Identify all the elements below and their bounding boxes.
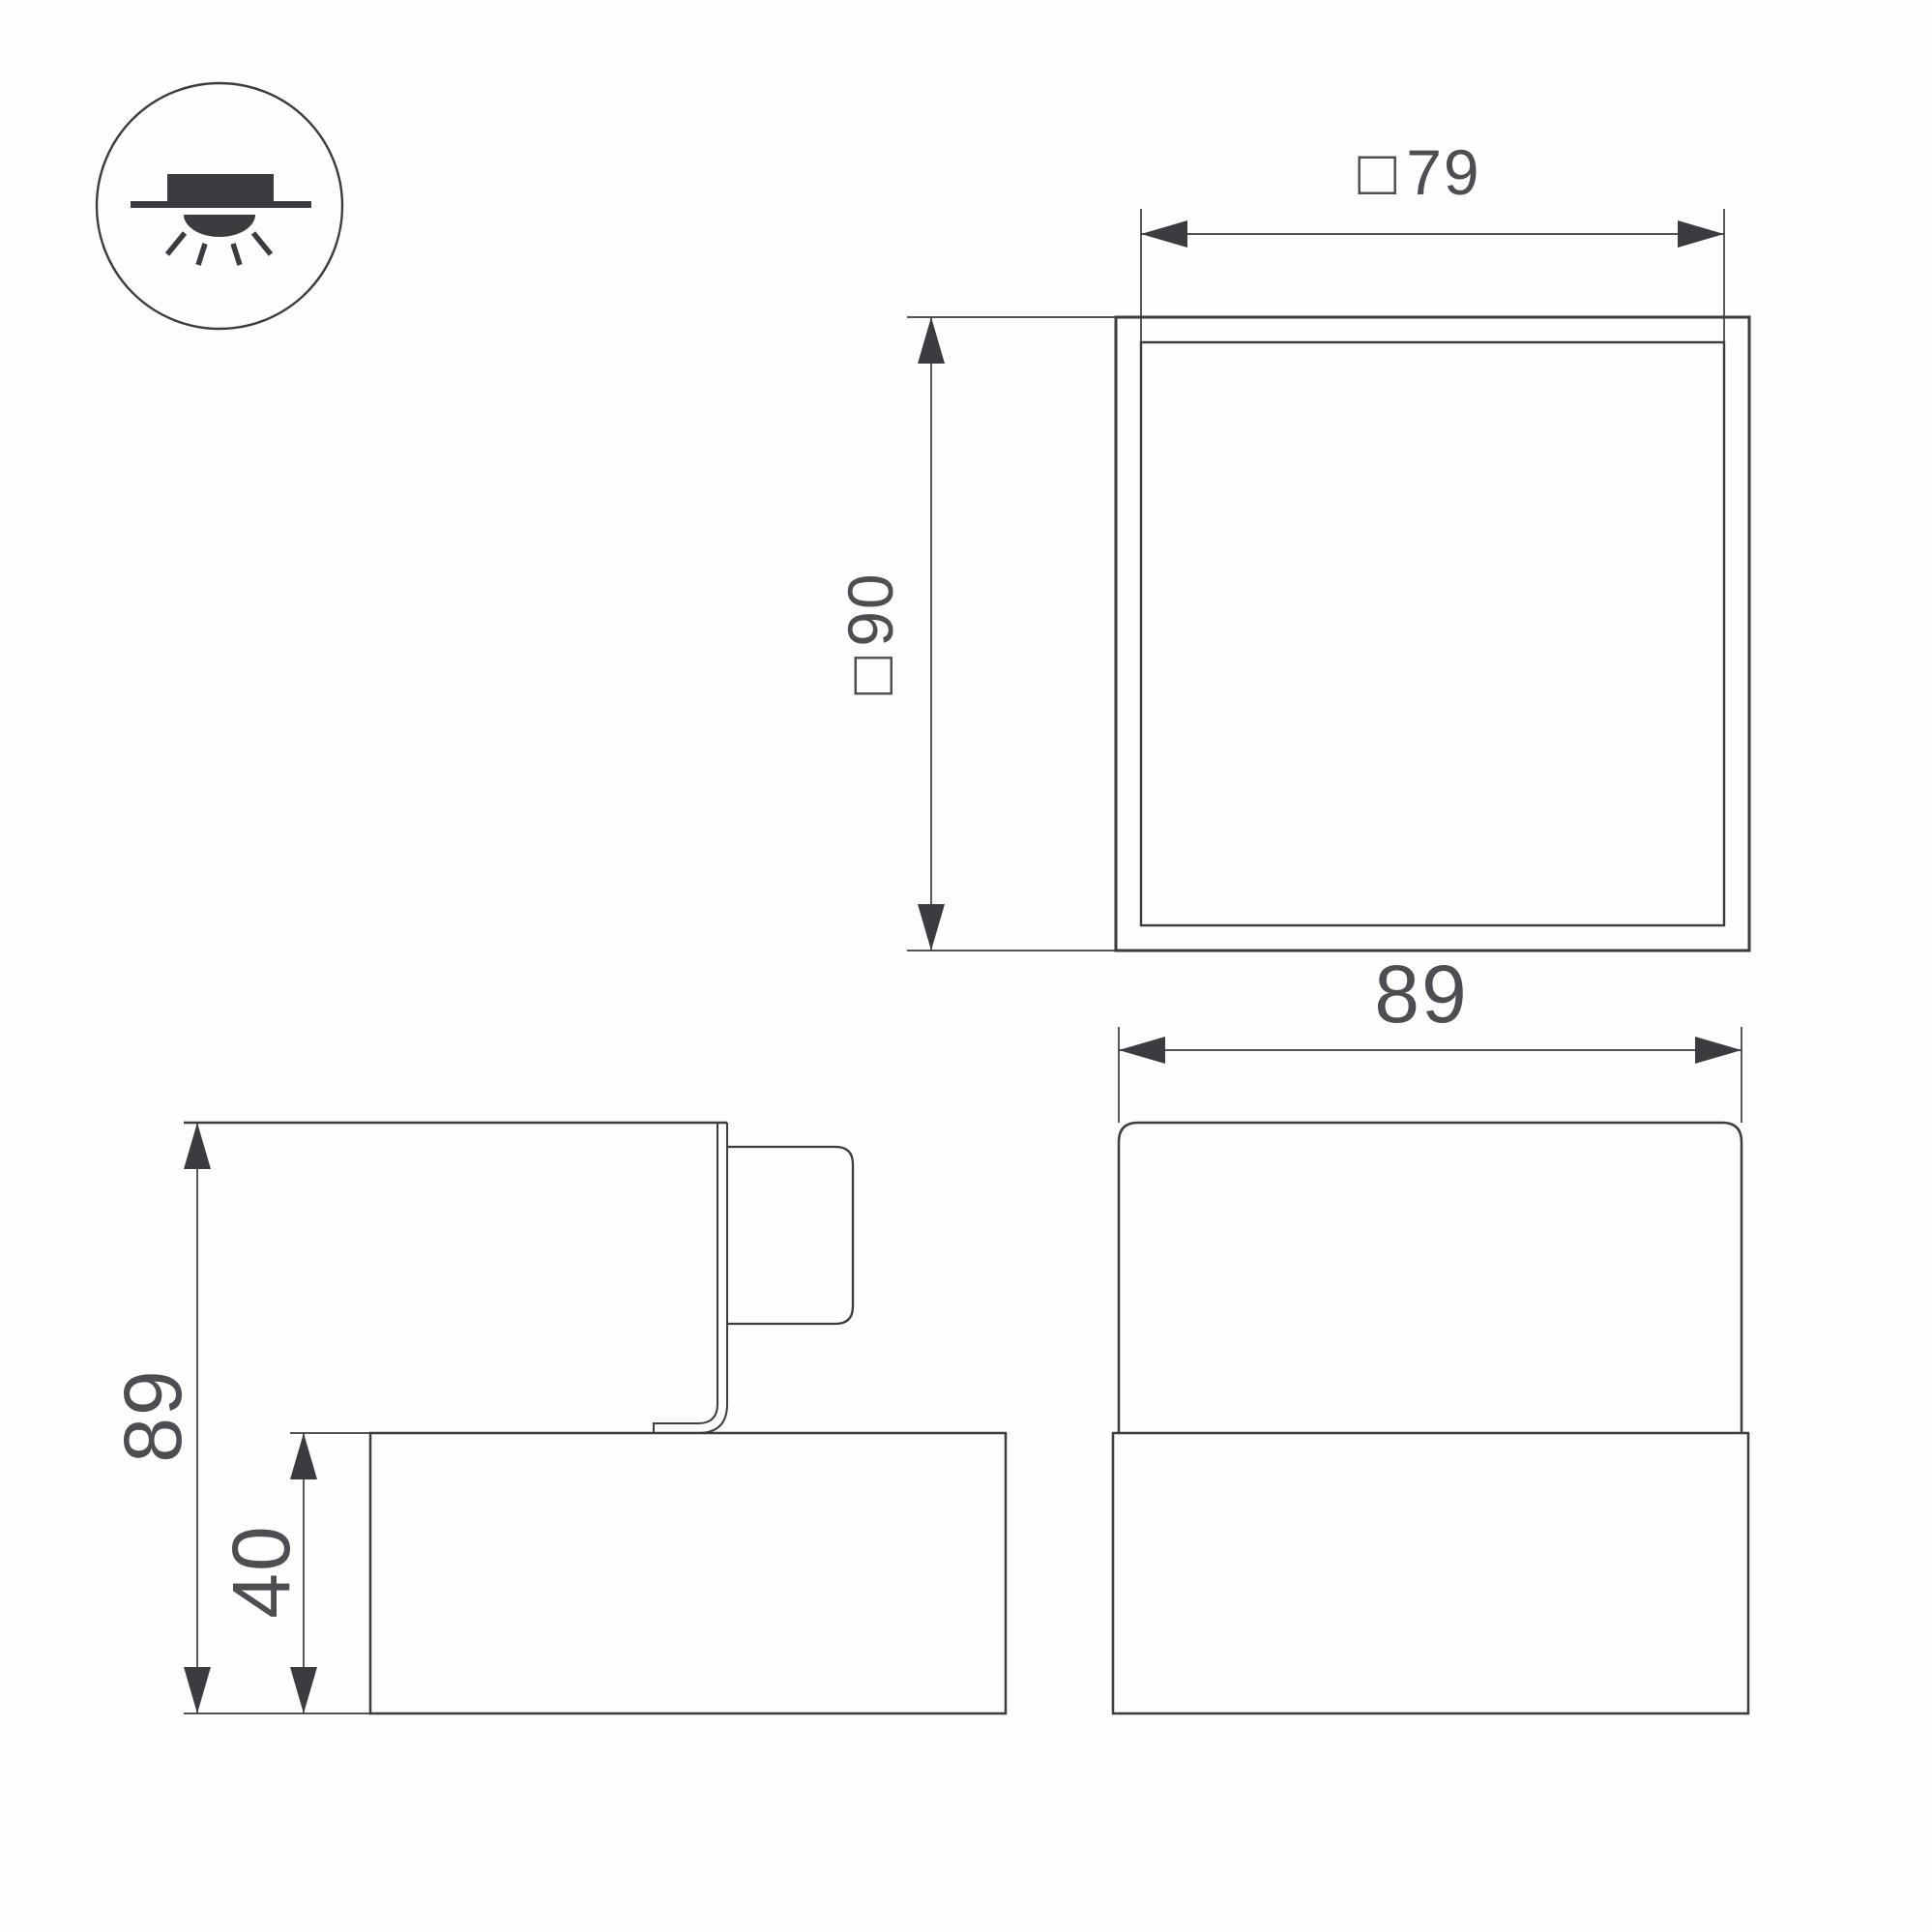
side-view-mounting-bracket [654,1123,727,1433]
arrowhead-down [184,1667,211,1713]
side-view-base-body [370,1433,1006,1713]
icon-light-dome [184,215,255,237]
dimension-label-front-width: 89 [1374,949,1468,1039]
arrowhead-up [918,317,945,364]
arrowhead-down [290,1667,317,1713]
surface-mount-downlight-icon [97,83,342,329]
top-view-outer-frame [1116,317,1749,951]
arrowhead-left [1141,220,1187,248]
dimension-top-width: □79 [1141,136,1724,342]
side-view-driver-box [727,1147,853,1324]
icon-light-rays [167,233,271,265]
dimension-front-width: 89 [1119,949,1742,1123]
front-view-head-body [1119,1123,1742,1433]
top-view: □79 □90 [834,136,1749,951]
icon-fixture-body [167,174,274,201]
arrowhead-up [290,1433,317,1479]
dimension-top-size: □90 [834,317,1116,951]
front-view: 89 [1113,949,1748,1713]
arrowhead-up [184,1123,211,1169]
side-view: 89 40 [107,1123,1006,1713]
dimension-label-top-size: □90 [834,571,906,694]
arrowhead-left [1119,1037,1165,1064]
dimension-label-base-height: 40 [216,1524,307,1618]
top-view-inner-panel [1141,342,1724,925]
dimension-label-total-height: 89 [107,1368,198,1462]
arrowhead-down [918,904,945,951]
dimension-side-base-height: 40 [216,1433,317,1713]
dimension-label-top-width: □79 [1358,136,1480,208]
front-view-base-body [1113,1433,1748,1713]
technical-drawing-sheet: □79 □90 89 40 [0,0,1932,1932]
arrowhead-right [1678,220,1724,248]
dimension-side-total-height: 89 [107,1123,211,1713]
icon-ceiling-line [131,201,311,208]
arrowhead-right [1695,1037,1742,1064]
